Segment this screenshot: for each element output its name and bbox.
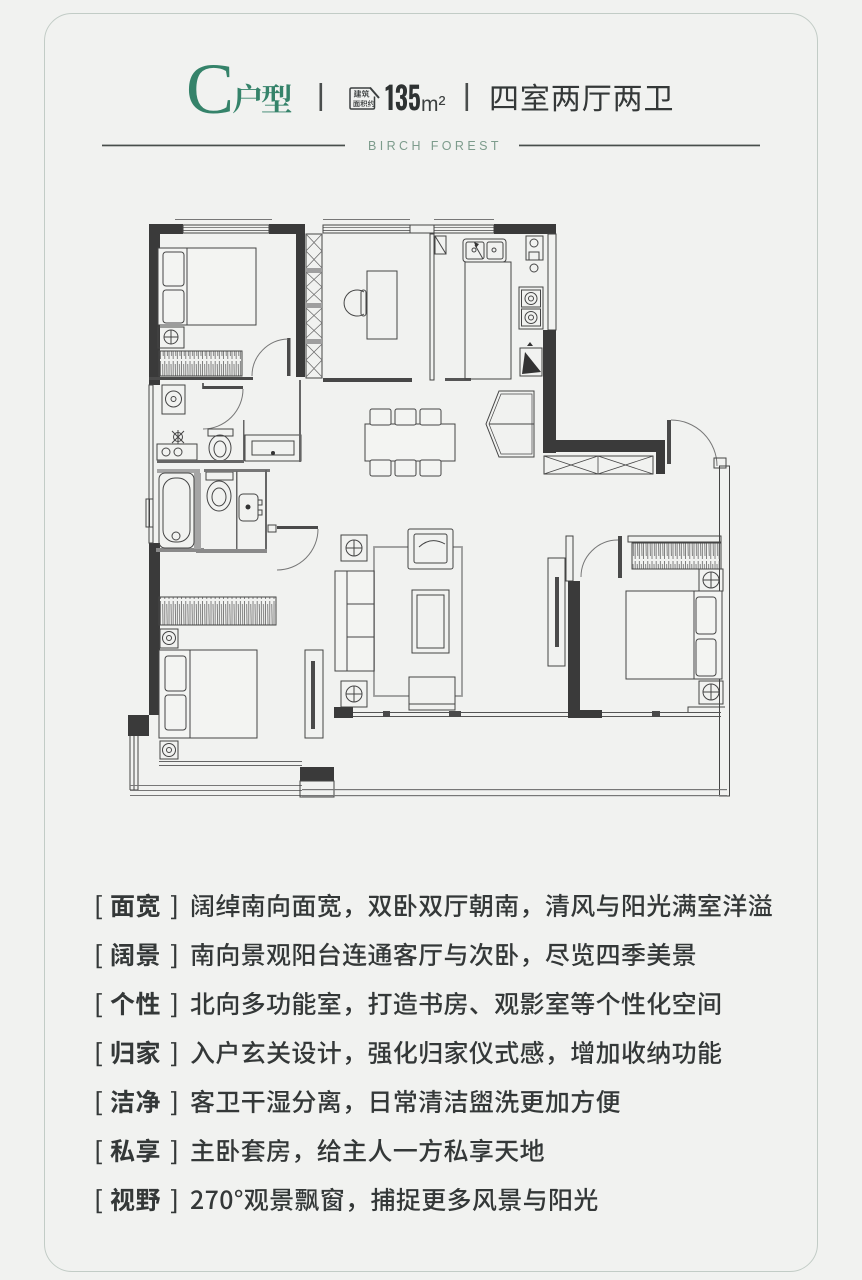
svg-text:BIRCH FOREST: BIRCH FOREST <box>368 139 502 153</box>
svg-text:C: C <box>186 49 234 129</box>
svg-text:m²: m² <box>421 93 446 116</box>
